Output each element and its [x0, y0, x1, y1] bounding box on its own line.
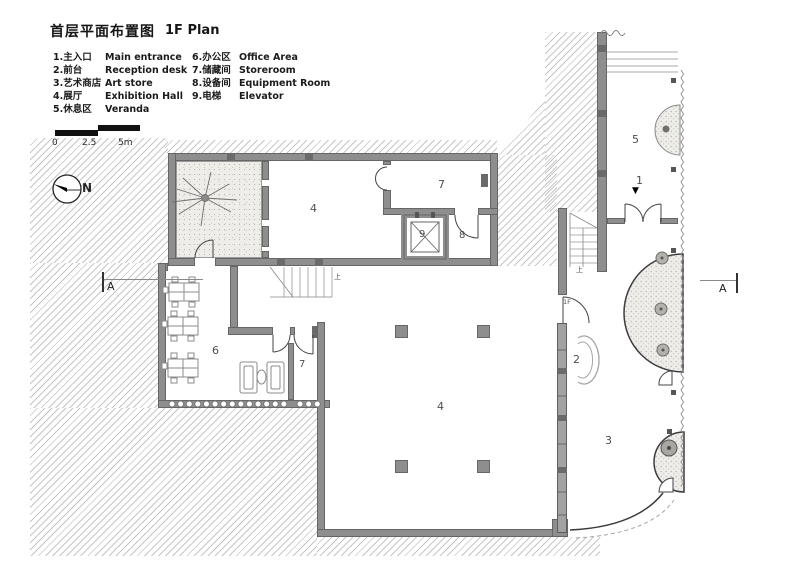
- legend-zh: 5.休息区: [53, 103, 105, 116]
- hatch-region: [497, 100, 545, 155]
- room-label-art-store: 3: [605, 435, 612, 446]
- legend-en: Reception desk: [105, 65, 187, 76]
- legend-zh: 9.电梯: [192, 90, 239, 103]
- scale-bar-segment: [55, 130, 98, 136]
- veranda-steps: [607, 52, 678, 72]
- room-label-office: 6: [212, 345, 219, 356]
- mullion: [557, 415, 567, 421]
- plan-title-zh: 首层平面布置图: [50, 21, 155, 41]
- hatch-region: [545, 32, 597, 212]
- legend-row: 6.办公区Office Area: [192, 51, 298, 64]
- wall: [168, 258, 195, 266]
- legend-en: Equipment Room: [239, 78, 330, 89]
- stair-interior: [270, 267, 332, 297]
- legend-en: Exhibition Hall: [105, 91, 183, 102]
- legend-zh: 3.艺术商店: [53, 77, 105, 90]
- legend-en: Main entrance: [105, 52, 182, 63]
- legend-zh: 2.前台: [53, 64, 105, 77]
- legend-zh: 1.主入口: [53, 51, 105, 64]
- legend-row: 4.展厅Exhibition Hall: [53, 90, 183, 103]
- hatch-region: [30, 138, 168, 263]
- wall: [158, 263, 166, 408]
- wall-partition: [262, 161, 269, 180]
- wall-partition: [262, 186, 269, 220]
- office-desks: [162, 277, 199, 383]
- lounge-sofas: [240, 362, 284, 393]
- stair-up-label: 上: [576, 267, 583, 274]
- column: [395, 325, 408, 338]
- wall-outer: [597, 32, 607, 272]
- wall-tick: [315, 258, 323, 266]
- wall: [290, 327, 295, 335]
- legend-en: Art store: [105, 78, 153, 89]
- legend-zh: 8.设备间: [192, 77, 239, 90]
- courtyard-floor: [176, 161, 262, 258]
- section-line: [700, 280, 737, 281]
- legend-row: 1.主入口Main entrance: [53, 51, 182, 64]
- legend-en: Office Area: [239, 52, 298, 63]
- floor-plan-page: 首层平面布置图 1F Plan 1.主入口Main entrance 2.前台R…: [0, 0, 800, 565]
- section-tick: [736, 273, 738, 293]
- room-label-reception: 2: [573, 354, 580, 365]
- mullion: [598, 110, 606, 117]
- wall: [228, 327, 273, 335]
- wall: [478, 208, 498, 215]
- legend-row: 8.设备间Equipment Room: [192, 77, 330, 90]
- column: [395, 460, 408, 473]
- wall-tick: [277, 258, 285, 266]
- room-label-exhibition-lower: 4: [437, 401, 444, 412]
- veranda-tree: [655, 105, 680, 155]
- reception-desk: [578, 336, 599, 384]
- boundary-posts: [667, 78, 676, 434]
- legend-row: 5.休息区Veranda: [53, 103, 149, 116]
- wall: [317, 322, 325, 537]
- section-label-right: A: [719, 282, 727, 295]
- wall: [230, 266, 238, 332]
- wall: [215, 258, 498, 266]
- site-boundary-zigzag: [681, 70, 684, 486]
- wall: [558, 208, 567, 295]
- glazed-wall: [557, 323, 567, 533]
- boundary-wave: [576, 500, 674, 538]
- legend-zh: 6.办公区: [192, 51, 239, 64]
- wall: [288, 343, 294, 400]
- legend-row: 9.电梯Elevator: [192, 90, 284, 103]
- wall-entrance: [660, 218, 678, 224]
- entrance-arrow-icon: ▼: [632, 186, 639, 196]
- wall-entrance: [607, 218, 625, 224]
- legend-en: Storeroom: [239, 65, 296, 76]
- legend-zh: 4.展厅: [53, 90, 105, 103]
- shaft-niche: [481, 174, 488, 187]
- legend-row: 2.前台Reception desk: [53, 64, 187, 77]
- level-mark-1f: 1F: [563, 299, 571, 306]
- section-label-left: A: [107, 280, 115, 293]
- wall-window-sill: [158, 400, 330, 408]
- stair-up-label: 上: [334, 274, 341, 281]
- mullion: [557, 467, 567, 473]
- section-line: [103, 279, 203, 280]
- wall: [317, 529, 567, 537]
- hatch-region: [165, 140, 497, 153]
- room-label-storeroom-bottom: 7: [299, 360, 305, 370]
- room-label-veranda: 5: [632, 134, 639, 145]
- legend-row: 7.储藏间Storeroom: [192, 64, 296, 77]
- wall: [168, 153, 498, 161]
- curved-wall: [570, 493, 663, 530]
- legend-row: 3.艺术商店Art store: [53, 77, 153, 90]
- wall: [383, 208, 455, 215]
- wall: [168, 153, 176, 266]
- wall-tick: [305, 153, 313, 161]
- wall-partition: [262, 251, 269, 258]
- hatch-region: [30, 263, 158, 408]
- legend-en: Veranda: [105, 104, 149, 115]
- garden-small: [654, 432, 684, 492]
- wall-tick: [227, 153, 235, 161]
- mullion: [598, 45, 606, 52]
- wall: [383, 161, 391, 165]
- section-tick: [102, 272, 104, 292]
- mullion: [557, 368, 567, 374]
- room-label-entrance: 1: [636, 175, 643, 186]
- hatch-region: [317, 537, 600, 556]
- column: [477, 460, 490, 473]
- wall-partition: [262, 226, 269, 247]
- hatch-region: [30, 408, 317, 556]
- column: [477, 325, 490, 338]
- stair-exterior: [570, 213, 597, 267]
- legend-zh: 7.储藏间: [192, 64, 239, 77]
- plan-title-en: 1F Plan: [165, 23, 219, 38]
- room-label-elevator: 9: [419, 230, 425, 240]
- room-label-equipment: 8: [459, 231, 465, 241]
- legend-en: Elevator: [239, 91, 284, 102]
- room-label-storeroom-top: 7: [438, 179, 445, 190]
- mullion: [598, 170, 606, 177]
- scale-bar-segment: [98, 125, 140, 131]
- room-label-exhibition-upper: 4: [310, 203, 317, 214]
- garden-large: [624, 252, 683, 385]
